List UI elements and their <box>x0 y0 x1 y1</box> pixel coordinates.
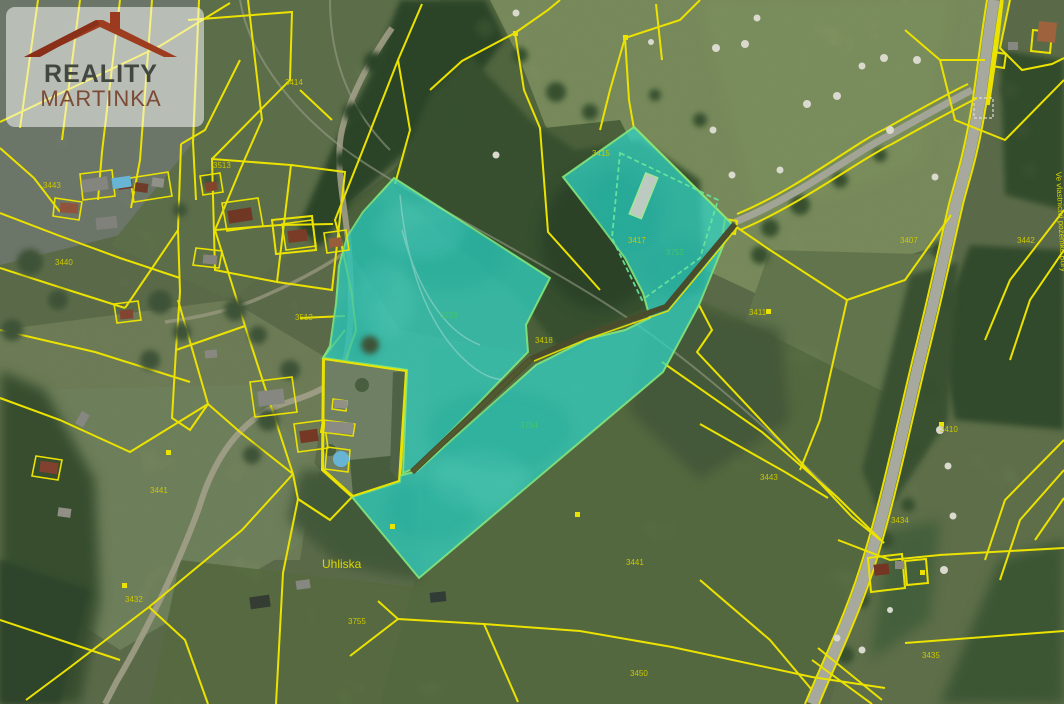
svg-text:REALITY: REALITY <box>44 60 158 88</box>
svg-text:MARTINKA: MARTINKA <box>40 86 161 111</box>
